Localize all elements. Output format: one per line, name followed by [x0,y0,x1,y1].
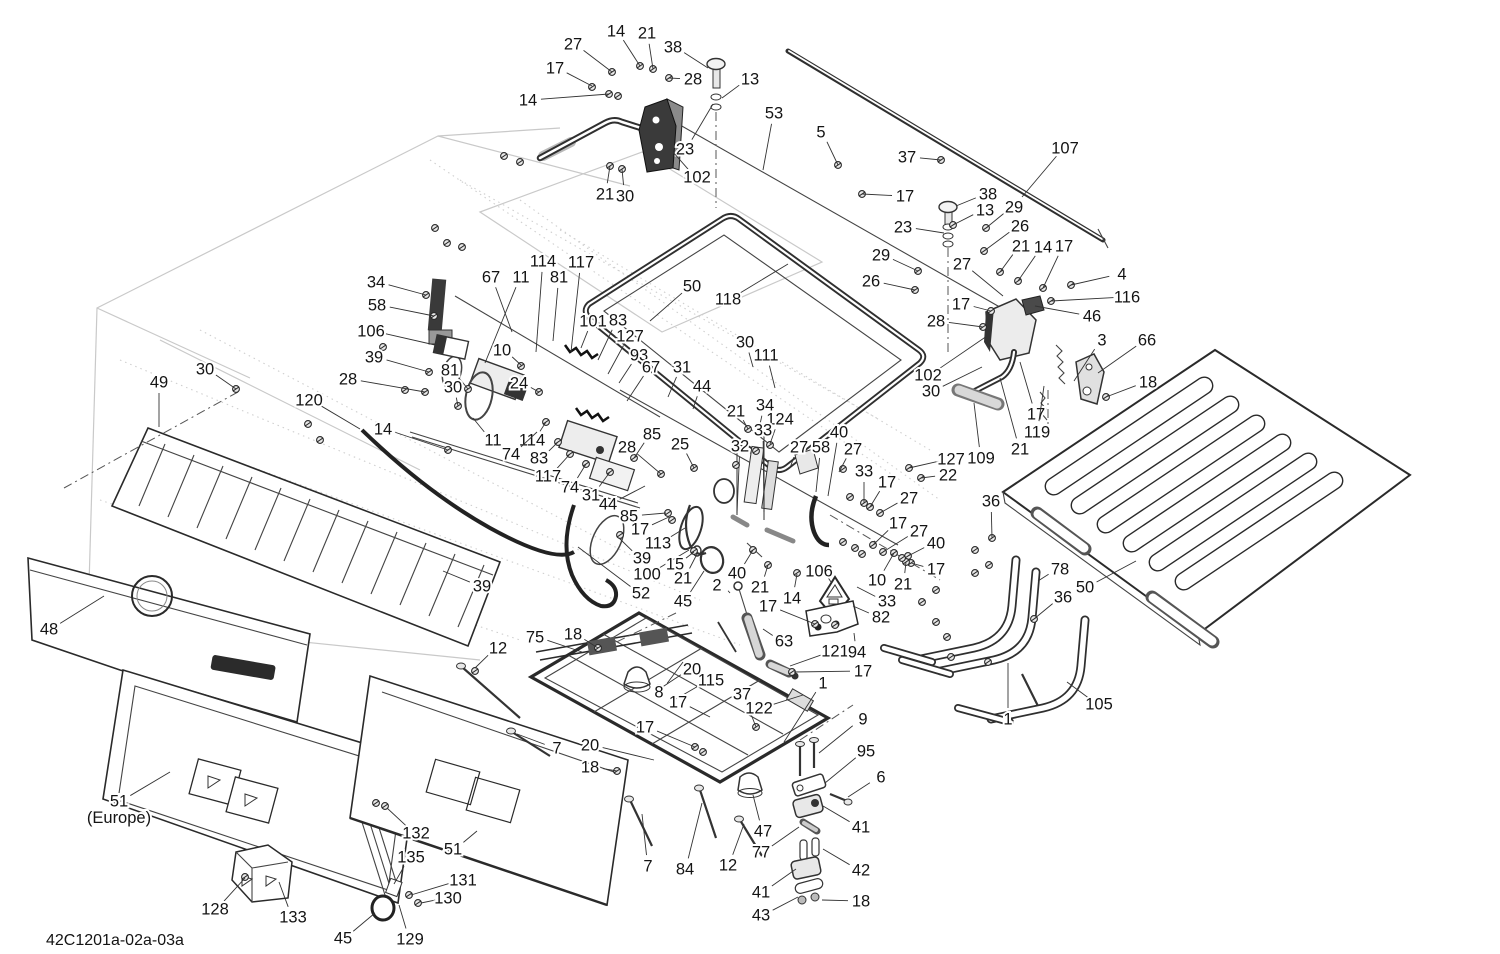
callout-leader [1106,386,1136,397]
callout-label-27: 27 [953,256,971,274]
callout-label-75: 75 [526,629,544,647]
callout-label-23: 23 [676,141,694,159]
callout-label-27: 27 [564,36,582,54]
callout-label-82: 82 [872,609,890,627]
callout-label-27: 27 [790,439,808,457]
tailgate-51 [350,676,628,920]
callout-label-31: 31 [673,359,691,377]
callout-label-117: 117 [568,254,594,272]
fastener-screw-icon [402,387,409,394]
fastener-screw-icon [733,462,740,469]
callout-label-46: 46 [1083,308,1101,326]
callout-leader [749,352,753,367]
callout-label-12: 12 [719,857,737,875]
callout-leader [581,331,588,348]
callout-label-51: 51 [444,841,462,859]
callout-label-40: 40 [927,535,945,553]
callout-leader [553,288,558,341]
callout-leader [1098,346,1136,373]
callout-label-44: 44 [693,378,711,396]
fastener-screw-icon [444,240,451,247]
callout-label-9: 9 [858,711,867,729]
callout-leader [984,232,1009,251]
callout-label-44: 44 [599,496,617,514]
callout-label-14: 14 [607,23,625,41]
callout-label-34: 34 [367,274,385,292]
fastener-screw-icon [459,244,466,251]
callout-leader [669,78,680,79]
fastener-screw-icon [472,668,479,675]
callout-leader [827,142,838,165]
callout-label-81: 81 [550,269,568,287]
callout-label-128: 128 [201,901,229,919]
callout-label-135: 135 [397,849,425,867]
callout-label-27: 27 [844,441,862,459]
callout-label-43: 43 [752,907,770,925]
callout-label-17: 17 [1027,406,1045,424]
callout-leader [722,85,739,98]
callout-leader [353,913,375,931]
callout-label-77: 77 [752,844,770,862]
callout-leader [1018,256,1035,281]
callout-label-111: 111 [753,347,778,365]
fastener-screw-icon [847,494,854,501]
callout-leader [690,554,697,568]
callout-label-24: 24 [510,375,528,393]
callout-leader [387,360,429,372]
callout-leader [577,464,586,478]
callout-leader [688,803,702,858]
callout-label-13: 13 [741,71,759,89]
callout-label-33: 33 [754,422,772,440]
callout-label-52: 52 [632,585,650,603]
callout-label-12: 12 [489,640,507,658]
callout-label-40: 40 [830,424,848,442]
callout-leader [819,726,853,753]
callout-leader [421,900,435,903]
callout-leader [541,94,609,99]
callout-leader [557,454,570,468]
callout-label-74: 74 [502,446,520,464]
callout-label-33: 33 [855,463,873,481]
callout-leader [1051,298,1114,301]
callout-label-129: 129 [396,931,424,949]
fastener-screw-icon [373,800,380,807]
callout-label-78: 78 [1051,561,1069,579]
callout-leader [1022,156,1056,197]
callout-label-121: 121 [821,643,849,661]
callout-label-81: 81 [441,362,459,380]
callout-label-40: 40 [728,565,746,583]
fastener-screw-icon [985,659,992,666]
callout-label-95: 95 [857,743,875,761]
fastener-screw-icon [615,93,622,100]
callout-leader [823,806,850,822]
callout-label-18: 18 [852,893,870,911]
callout-label-11: 11 [484,432,501,450]
callout-label-38: 38 [664,39,682,57]
callout-label-7: 7 [643,858,652,876]
callout-label-106: 106 [805,563,833,581]
fastener-screw-icon [832,622,839,629]
callout-leader [953,215,973,225]
callout-leader [584,50,612,72]
callout-leader [649,44,653,69]
callout-label-83: 83 [530,450,548,468]
callout-leader [822,900,848,901]
callout-label-29: 29 [1005,199,1023,217]
callout-leader [687,454,694,468]
callout-label-45: 45 [334,930,352,948]
callout-label-21: 21 [674,570,692,588]
callout-label-30: 30 [736,334,754,352]
fastener-screw-icon [242,874,249,881]
callout-label-11: 11 [512,269,529,287]
callout-label-18: 18 [1139,374,1157,392]
callout-leader [567,73,592,86]
callout-label-1: 1 [818,675,827,693]
callout-leader [763,629,773,636]
callout-label-21: 21 [1012,238,1030,256]
fastener-screw-icon [700,749,707,756]
callout-label-74: 74 [561,479,579,497]
callout-label-14: 14 [1034,239,1052,257]
callout-label-66: 66 [1138,332,1156,350]
callout-leader [893,259,918,271]
fastener-screw-icon [919,599,926,606]
callout-label-1: 1 [1003,711,1012,729]
callout-leader [772,869,796,886]
callout-leader [939,336,987,369]
callout-label-21: 21 [751,579,769,597]
callout-label-53: 53 [765,105,783,123]
callout-label-109: 109 [967,450,995,468]
callout-label-127: 127 [616,328,644,346]
callout-label-37: 37 [898,149,916,167]
callout-label-131: 131 [449,872,477,890]
callout-label-118: 118 [715,291,741,309]
fastener-screw-icon [852,545,859,552]
callout-leader [949,322,983,327]
callout-label-28: 28 [927,313,945,331]
callout-label-36: 36 [982,493,1000,511]
callout-label-14: 14 [783,590,801,608]
callout-label-5: 5 [816,124,825,142]
callout-leader [389,285,426,295]
fastener-screw-icon [669,517,676,524]
callout-label-120: 120 [295,392,323,410]
callout-label-45: 45 [674,593,692,611]
callout-label-25: 25 [671,436,689,454]
callout-label-26: 26 [1011,218,1029,236]
fastener-screw-icon [899,555,906,562]
bent-tube [540,120,641,158]
callout-label-21: 21 [596,186,614,204]
callout-label-49: 49 [150,374,168,392]
callout-leader [361,381,425,392]
callout-label-85: 85 [643,426,661,444]
callout-leader [728,591,730,593]
callout-leader [909,461,938,468]
callout-label-6: 6 [876,769,885,787]
callout-leader [652,517,669,525]
callout-label-8: 8 [654,684,663,702]
callout-label-21: 21 [638,25,656,43]
callout-label-58: 58 [368,297,386,315]
callout-leader [667,662,683,683]
callout-leader [943,367,982,386]
callout-leader [1071,276,1109,285]
callout-label-63: 63 [775,633,793,651]
callout-leader [1000,255,1013,272]
callout-label-47: 47 [754,823,772,841]
callout-label-17: 17 [669,694,687,712]
callout-leader [536,272,542,352]
callout-leader [1043,256,1058,288]
callout-leader [739,264,788,293]
callout-label-17: 17 [889,515,907,533]
callout-leader [769,366,775,388]
fastener-screw-icon [972,547,979,554]
parts-diagram-page: 2717142138281314231022130535371071738132… [0,0,1500,954]
callout-label-31: 31 [582,487,600,505]
callout-label-2: 2 [712,577,721,595]
fastener-screw-icon [415,900,422,907]
callout-label-130: 130 [434,890,462,908]
fastener-screw-icon [617,532,624,539]
callout-leader [578,547,631,587]
callout-leader [686,552,694,558]
callout-leader [623,40,640,66]
fastener-screw-icon [518,363,525,370]
callout-leader [794,671,850,672]
callout-label-39: 39 [365,349,383,367]
callout-label-27: 27 [900,490,918,508]
callout-label-36: 36 [1054,589,1072,607]
callout-label-17: 17 [546,60,564,78]
callout-leader [608,346,623,374]
callout-label-17: 17 [1055,238,1073,256]
callout-label-48: 48 [40,621,58,639]
callout-label-17: 17 [952,296,970,314]
callout-leader [690,571,704,592]
callout-label-21: 21 [894,576,912,594]
fastener-screw-icon [517,159,524,166]
callout-leader [1020,362,1032,403]
callout-leader [772,827,799,846]
callout-label-29: 29 [872,247,890,265]
callout-label-10: 10 [868,572,886,590]
callout-label-30: 30 [922,383,940,401]
fastener-screw-icon [840,539,847,546]
knob-38-left [707,59,725,111]
fastener-screw-icon [753,448,760,455]
callout-leader [657,731,695,747]
callout-label-41: 41 [852,819,870,837]
callout-label-27: 27 [910,523,928,541]
callout-label-133: 133 [279,909,307,927]
callout-leader [848,783,870,797]
callout-label-50: 50 [683,278,701,296]
callout-leader [619,364,631,383]
chain-linkage [790,773,826,904]
fastener-screw-icon [933,587,940,594]
callout-label-14: 14 [519,92,537,110]
fastener-screw-icon [986,562,993,569]
callout-label-13: 13 [976,202,994,220]
callout-label-94: 94 [848,644,866,662]
callout-leader [823,849,850,865]
fastener-screw-icon [767,442,774,449]
callout-label-42: 42 [852,862,870,880]
callout-label-17: 17 [878,474,896,492]
callout-label-30: 30 [196,361,214,379]
callout-label-23: 23 [894,219,912,237]
callout-leader [862,194,892,195]
callout-leader [884,283,915,290]
callout-leader [384,333,435,345]
callout-label-28: 28 [618,439,636,457]
callout-leader [974,403,979,447]
callout-label-67: 67 [482,269,500,287]
callout-label-21: 21 [727,403,745,421]
callout-label-28: 28 [339,371,357,389]
callout-leader [399,905,406,929]
callout-leader [880,503,897,513]
callout-leader [854,633,855,641]
callout-leader [744,550,753,564]
callout-label-17: 17 [854,663,872,681]
callout-label-119: 119 [1024,424,1050,442]
exploded-parts-diagram: 2717142138281314231022130535371071738132… [0,0,1500,954]
callout-leader [390,307,434,316]
drawing-code: 42C1201a-02a-03a [46,932,184,949]
callout-label-41: 41 [752,884,770,902]
callout-leader [661,675,681,688]
fastener-screw-icon [944,634,951,641]
callout-label-30: 30 [616,188,634,206]
callout-leader [884,553,894,571]
callout-label-4: 4 [1117,266,1126,284]
callout-label-30: 30 [444,379,462,397]
latch-bracket-102-top [639,99,683,172]
callout-leader [956,198,976,206]
callout-label-39: 39 [473,578,491,596]
callout-leader [320,405,360,429]
callout-label-22: 22 [939,467,957,485]
callout-leader [627,376,644,401]
callout-label-3: 3 [1097,332,1106,350]
callout-label-67: 67 [642,359,660,377]
callout-leader [637,454,661,474]
callout-label-18: 18 [564,626,582,644]
callout-label-18: 18 [581,759,599,777]
fastener-screw-icon [933,619,940,626]
callout-leader [549,442,558,451]
support-brackets [884,560,1085,722]
callout-label-114: 114 [519,432,545,450]
callout-leader [773,897,798,910]
callout-label-17: 17 [759,598,777,616]
callout-leader [475,655,488,668]
callout-label-58: 58 [812,439,830,457]
callout-leader [763,124,772,170]
callout-label-116: 116 [1114,289,1140,307]
fastener-screw-icon [432,225,439,232]
callout-label-106: 106 [357,323,385,341]
fastener-screw-icon [972,570,979,577]
fastener-screw-icon [501,153,508,160]
fastener-screw-icon [305,421,312,428]
callout-label-100: 100 [633,566,661,584]
callout-sublabel: (Europe) [87,809,151,827]
callout-leader [790,654,823,666]
callout-label-26: 26 [862,273,880,291]
callout-label-17: 17 [636,719,654,737]
callout-label-122: 122 [745,700,773,718]
callout-label-132: 132 [402,825,430,843]
callout-leader [684,53,708,68]
callout-leader [642,513,666,515]
callout-leader [870,491,880,507]
callout-label-14: 14 [374,421,392,439]
callout-label-17: 17 [927,561,945,579]
callout-label-7: 7 [552,740,561,758]
callout-leader [825,758,856,783]
fastener-screw-icon [317,437,324,444]
callout-label-17: 17 [896,188,914,206]
callout-label-102: 102 [683,169,711,187]
callout-leader [916,229,944,233]
callout-label-21: 21 [1011,441,1029,459]
callout-leader [733,824,744,855]
callout-label-101: 101 [579,313,607,331]
callout-label-84: 84 [676,861,694,879]
callout-label-20: 20 [581,737,599,755]
callout-leader [669,528,685,538]
callout-label-105: 105 [1085,696,1113,714]
callout-label-115: 115 [698,672,724,690]
fastener-screw-icon [859,551,866,558]
callout-label-107: 107 [1051,140,1079,158]
callout-label-10: 10 [493,342,511,360]
callout-label-32: 32 [731,438,749,456]
callout-leader [692,104,713,140]
callout-leader [908,548,924,556]
fastener-screw-icon [948,654,955,661]
callout-label-50: 50 [1076,579,1094,597]
callout-label-51: 51 [110,793,128,811]
callout-leader [512,357,522,366]
callout-label-117: 117 [535,468,561,486]
callout-label-28: 28 [684,71,702,89]
callout-leader [753,795,760,820]
